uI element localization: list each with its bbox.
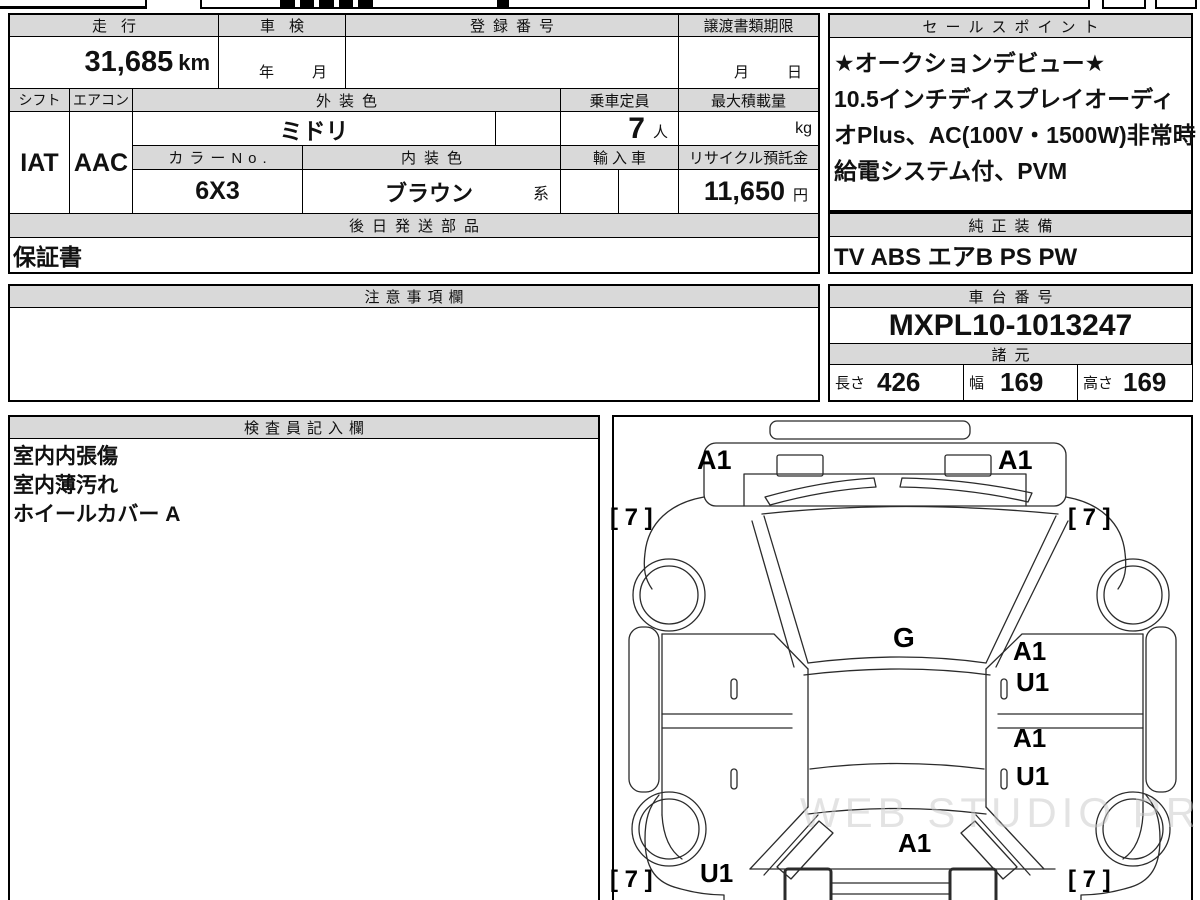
spec-height-value: 169 [1123, 367, 1166, 398]
shaken-header: 車検 [218, 14, 346, 37]
exterior-color-value: ミドリ [280, 112, 349, 146]
damage-label-right-door-2: U1 [1016, 667, 1049, 698]
sales-point-line: オPlus、AC(100V・1500W)非常時 [834, 117, 1190, 153]
sales-point-text: ★オークションデビュー★ 10.5インチディスプレイオーディ オPlus、AC(… [834, 45, 1190, 205]
color-no-value: 6X3 [195, 177, 239, 206]
spec-length-cell: 長さ 426 [829, 364, 964, 401]
interior-color-value: ブラウン [385, 176, 473, 208]
capacity-header: 乗車定員 [560, 88, 679, 112]
inspector-note: ホイールカバー A [13, 500, 593, 529]
recycle-deposit-value: 11,650 [704, 176, 785, 207]
interior-color-value-cell: ブラウン 系 [302, 169, 561, 214]
exterior-color-value-cell: ミドリ [132, 111, 496, 146]
shift-value: IAT [20, 149, 58, 178]
damage-label-right-door-3: A1 [1013, 723, 1046, 754]
mileage-value-cell: 31,685 km [9, 36, 219, 89]
aircon-value-cell: AAC [69, 111, 133, 215]
sales-point-line: ★オークションデビュー★ [834, 45, 1190, 81]
cutoff-text-fragment [280, 0, 295, 8]
capacity-value: 7 [628, 112, 645, 146]
interior-color-suffix: 系 [533, 180, 549, 204]
damage-label-glass: G [893, 622, 915, 654]
equipment-value: TV ABS エアB PS PW [834, 238, 1190, 271]
mileage-value: 31,685 [85, 46, 174, 79]
max-load-unit: kg [795, 120, 812, 138]
tire-mark-front-right: [ 7 ] [1068, 504, 1111, 532]
cutoff-text-fragment [339, 0, 353, 8]
spec-width-value: 169 [1000, 367, 1043, 398]
chassis-value-cell: MXPL10-1013247 [829, 307, 1192, 344]
specs-header: 諸元 [829, 343, 1192, 365]
shift-value-cell: IAT [9, 111, 70, 215]
aircon-value: AAC [74, 149, 128, 178]
spec-width-cell: 幅 169 [963, 364, 1078, 401]
tire-mark-rear-right: [ 7 ] [1068, 866, 1111, 894]
inspector-header: 検査員記入欄 [9, 416, 599, 439]
cutoff-text-fragment [497, 0, 509, 8]
tire-mark-rear-left: [ 7 ] [610, 866, 653, 894]
chassis-specs-box: 車台番号 MXPL10-1013247 諸元 長さ 426 幅 169 高さ 1… [828, 284, 1193, 402]
notes-content [10, 308, 818, 400]
damage-label-front-left: A1 [697, 445, 732, 476]
transfer-day-label: 日 [787, 61, 802, 82]
cutoff-cell [1102, 0, 1146, 9]
damage-label-right-door-1: A1 [1013, 636, 1046, 667]
inspector-notes: 室内内張傷 室内薄汚れ ホイールカバー A [13, 442, 593, 529]
transfer-month-label: 月 [734, 61, 749, 82]
watermark: WEB STUDIO PRO [800, 789, 1200, 837]
cutoff-cell [0, 0, 147, 9]
interior-color-header: 内装色 [302, 145, 561, 170]
max-load-header: 最大積載量 [678, 88, 819, 112]
shaken-month-label: 月 [312, 61, 327, 82]
capacity-value-cell: 7 人 [560, 111, 679, 146]
import-value-cell-b [618, 169, 679, 214]
transfer-deadline-value-cell: 月 日 [678, 36, 819, 89]
exterior-color-header: 外装色 [132, 88, 561, 112]
sales-point-line: 給電システム付、PVM [834, 153, 1190, 189]
later-parts-value-cell: 保証書 [9, 237, 819, 273]
inspector-note: 室内薄汚れ [13, 471, 593, 500]
exterior-color-extra-cell [495, 111, 561, 146]
aircon-header: エアコン [69, 88, 133, 112]
cutoff-text-fragment [319, 0, 334, 8]
auction-sheet: 走行 車検 登録番号 譲渡書類期限 31,685 km 年 月 月 日 シフト … [0, 0, 1200, 900]
recycle-deposit-header: リサイクル預託金 [678, 145, 819, 170]
inspector-note: 室内内張傷 [13, 442, 593, 471]
sales-point-line: 10.5インチディスプレイオーディ [834, 81, 1190, 117]
sales-point-box: セールスポイント ★オークションデビュー★ 10.5インチディスプレイオーディ … [828, 13, 1193, 212]
recycle-deposit-value-cell: 11,650 円 [678, 169, 819, 214]
notes-header: 注意事項欄 [9, 285, 819, 308]
shaken-year-label: 年 [259, 61, 274, 82]
inspector-box: 検査員記入欄 室内内張傷 室内薄汚れ ホイールカバー A [8, 415, 600, 900]
sales-point-header: セールスポイント [829, 14, 1192, 38]
later-parts-value: 保証書 [13, 238, 82, 272]
cutoff-cell [1155, 0, 1197, 9]
later-parts-header: 後日発送部品 [9, 213, 819, 238]
import-header: 輸入車 [560, 145, 679, 170]
spec-height-cell: 高さ 169 [1077, 364, 1193, 401]
notes-box: 注意事項欄 [8, 284, 820, 402]
chassis-value: MXPL10-1013247 [889, 309, 1133, 343]
damage-label-right-door-4: U1 [1016, 761, 1049, 792]
damage-label-rear-gate: A1 [898, 828, 931, 859]
transfer-deadline-header: 譲渡書類期限 [678, 14, 819, 37]
import-value-cell-a [560, 169, 619, 214]
color-no-value-cell: 6X3 [132, 169, 303, 214]
registration-header: 登録番号 [345, 14, 679, 37]
spec-length-value: 426 [877, 367, 920, 398]
spec-length-label: 長さ [835, 372, 865, 393]
shift-header: シフト [9, 88, 70, 112]
max-load-value-cell: kg [678, 111, 819, 146]
shaken-value-cell: 年 月 [218, 36, 346, 89]
capacity-unit: 人 [653, 121, 668, 142]
damage-label-rear-quarter-left: U1 [700, 858, 733, 889]
chassis-header: 車台番号 [829, 285, 1192, 308]
mileage-unit: km [178, 50, 210, 76]
damage-label-front-right: A1 [998, 445, 1033, 476]
color-no-header: カラーNo. [132, 145, 303, 170]
cutoff-row [0, 0, 1200, 11]
cutoff-text-fragment [300, 0, 314, 8]
registration-value-cell [345, 36, 679, 89]
spec-height-label: 高さ [1083, 372, 1113, 393]
equipment-header: 純正装備 [829, 213, 1192, 237]
main-info-table: 走行 車検 登録番号 譲渡書類期限 31,685 km 年 月 月 日 シフト … [8, 13, 820, 274]
cutoff-text-fragment [358, 0, 373, 8]
spec-width-label: 幅 [969, 372, 984, 393]
recycle-deposit-unit: 円 [793, 184, 808, 205]
tire-mark-front-left: [ 7 ] [610, 504, 653, 532]
mileage-header: 走行 [9, 14, 219, 37]
equipment-box: 純正装備 TV ABS エアB PS PW [828, 212, 1193, 274]
